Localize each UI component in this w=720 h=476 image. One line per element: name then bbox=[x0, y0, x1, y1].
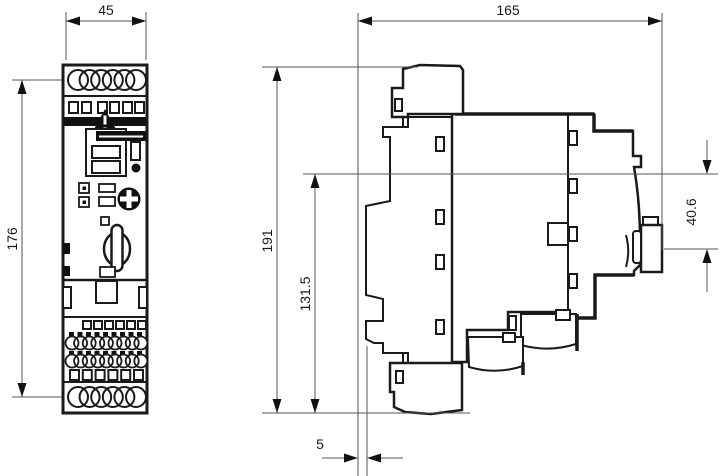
arrowhead bbox=[18, 80, 27, 94]
dim-label-terminal-block-height: 40.6 bbox=[683, 198, 699, 225]
arrowhead bbox=[703, 160, 712, 174]
led-window bbox=[131, 142, 140, 160]
dim-label-side-width: 165 bbox=[496, 2, 520, 18]
arrowhead bbox=[18, 383, 27, 397]
dim-label-side-inner-height: 131.5 bbox=[297, 276, 313, 311]
dim-label-front-width: 45 bbox=[98, 2, 114, 18]
bottom-terminal-circles bbox=[68, 387, 146, 407]
indicator-square-3 bbox=[101, 217, 109, 225]
arrowhead bbox=[367, 454, 381, 463]
side-view bbox=[366, 65, 662, 414]
test-button bbox=[132, 164, 141, 173]
terminal-circle-row-2 bbox=[66, 354, 148, 367]
edge-notch-1 bbox=[63, 243, 70, 254]
reset-field-lower bbox=[92, 161, 120, 173]
dim-front-width: 45 bbox=[66, 2, 146, 60]
dim-label-side-height: 191 bbox=[259, 229, 275, 253]
dim-label-front-height: 176 bbox=[4, 227, 20, 251]
internal-step bbox=[548, 223, 568, 245]
warning-exclamation-icon bbox=[104, 116, 107, 125]
arrowhead bbox=[311, 174, 320, 188]
marking-field-2 bbox=[99, 197, 115, 206]
din-slot-right bbox=[139, 287, 147, 308]
dim-label-base-offset: 5 bbox=[316, 436, 324, 452]
vent-slot-small bbox=[509, 316, 516, 330]
arrowhead bbox=[703, 249, 712, 263]
right-block-contact bbox=[633, 231, 641, 263]
reset-field-upper bbox=[92, 146, 120, 158]
arrowhead bbox=[358, 17, 372, 26]
flap-lower-notch bbox=[503, 333, 515, 342]
arrowhead bbox=[273, 399, 282, 413]
marking-field-3 bbox=[100, 267, 115, 277]
body-top-right-step bbox=[594, 114, 633, 131]
arrowhead bbox=[344, 454, 358, 463]
flap-upper-notch bbox=[556, 310, 570, 320]
right-terminal-block bbox=[641, 225, 662, 272]
terminal-dot-row-1 bbox=[69, 332, 142, 336]
indicator-dot-1 bbox=[83, 187, 87, 191]
terminal-circle-row-1 bbox=[66, 336, 148, 349]
top-block-slot bbox=[395, 99, 402, 111]
arrowhead bbox=[66, 17, 80, 26]
label-strip-line bbox=[99, 136, 143, 138]
top-terminal-circles bbox=[68, 70, 146, 90]
indicator-dot-2 bbox=[83, 201, 87, 205]
din-window bbox=[96, 281, 117, 303]
marking-field-1 bbox=[99, 184, 115, 192]
dial-slot-horizontal bbox=[120, 197, 138, 202]
dim-front-height: 176 bbox=[4, 80, 62, 397]
dimension-drawing: 45 176 165 191 131.5 40.6 bbox=[0, 0, 720, 476]
arrowhead bbox=[132, 17, 146, 26]
arrowhead bbox=[648, 17, 662, 26]
front-view bbox=[63, 65, 147, 413]
arrowhead bbox=[311, 399, 320, 413]
dim-terminal-block-height: 40.6 bbox=[664, 140, 718, 292]
rotary-switch-handle bbox=[112, 225, 123, 271]
din-slot-left bbox=[63, 287, 71, 308]
bottom-block-slot bbox=[396, 371, 403, 383]
drawing-canvas: 45 176 165 191 131.5 40.6 bbox=[0, 0, 720, 476]
arrowhead bbox=[273, 67, 282, 81]
bottom-block-foot bbox=[403, 353, 408, 363]
edge-notch-2 bbox=[63, 266, 70, 276]
